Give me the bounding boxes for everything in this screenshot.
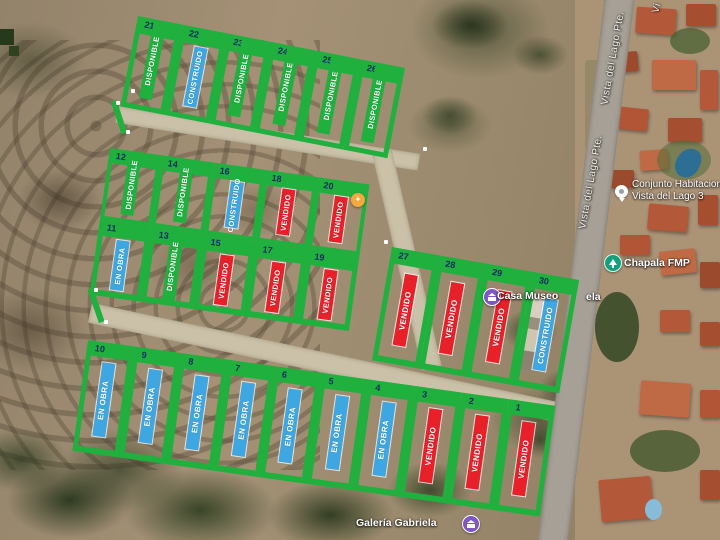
lot-status-label: CONSTRUIDO [226,177,242,232]
lot-number: 30 [538,275,550,287]
lot-status-label: EN OBRA [330,412,344,453]
lot-status-bar: EN OBRA [139,369,162,444]
vertex-dot[interactable] [94,288,98,292]
poi-label-conjunto-line2: Vista del Lago 3 [632,191,704,203]
lot-number: 14 [167,158,178,169]
lot-status-bar: DISPONIBLE [361,64,389,143]
lot-status-label: EN OBRA [113,246,127,284]
lot-status-bar: EN OBRA [185,375,208,450]
lot-number: 17 [262,244,273,255]
lot-status-bar: EN OBRA [92,362,115,437]
lot-status-bar: DISPONIBLE [317,56,345,135]
lot-status-label: EN OBRA [236,399,250,440]
lot-status-label: DISPONIBLE [321,70,339,121]
lot-status-bar: EN OBRA [372,402,395,477]
lot-status-bar: VENDIDO [466,415,489,490]
lot-number: 1 [515,402,521,413]
lot-status-bar: VENDIDO [318,269,338,320]
lot-status-bar: CONSTRUIDO [183,46,207,107]
lot-status-bar: VENDIDO [513,421,536,496]
lot-status-label: VENDIDO [423,426,437,466]
lot-number: 18 [271,173,282,184]
lot-status-label: VENDIDO [331,201,345,239]
poi-label-galeria-gabriela: Galería Gabriela [356,517,437,529]
lot-status-bar: EN OBRA [232,382,255,457]
lot-status-label: DISPONIBLE [165,241,181,292]
orange-poi-marker[interactable]: ✦ [351,193,365,207]
lot-number: 9 [141,350,147,361]
lot-status-label: VENDIDO [279,193,293,231]
lot-status-bar: DISPONIBLE [121,153,143,216]
vertex-dot[interactable] [104,320,108,324]
lot-20[interactable]: 20VENDIDO [308,177,370,256]
lot-status-bar: VENDIDO [214,254,234,305]
lot-number: 28 [445,259,457,271]
tree-cluster-north [410,0,580,160]
lot-status-bar: CONSTRUIDO [225,181,244,228]
lot-status-bar: EN OBRA [110,240,130,291]
poi-label-chapala-fmp: Chapala FMP [624,257,690,269]
lot-number: 2 [468,396,474,407]
lot-number: 22 [188,28,200,40]
lot-status-label: CONSTRUIDO [536,306,555,364]
lot-number: 4 [375,383,381,394]
lot-number: 19 [314,252,325,263]
lot-status-bar: DISPONIBLE [228,38,256,117]
lot-number: 29 [491,267,503,279]
lot-status-bar: DISPONIBLE [272,47,300,126]
vertex-dot[interactable] [423,147,427,151]
lot-status-bar: DISPONIBLE [139,21,167,100]
vertex-dot[interactable] [384,240,388,244]
lot-status-label: VENDIDO [217,261,231,299]
lot-status-label: EN OBRA [190,393,204,434]
lot-status-bar: VENDIDO [328,196,347,243]
museum-glyph [467,520,475,523]
lot-status-label: EN OBRA [96,379,110,420]
lot-number: 3 [421,389,427,400]
lot-status-bar: CONSTRUIDO [533,298,558,371]
vertex-dot[interactable] [131,89,135,93]
lot-status-label: DISPONIBLE [123,159,139,210]
lot-status-label: EN OBRA [143,386,157,427]
lot-number: 10 [94,343,105,354]
lot-status-label: DISPONIBLE [277,61,295,112]
swimming-pool [645,499,662,520]
lot-status-label: VENDIDO [397,290,413,330]
lot-status-label: EN OBRA [377,419,391,460]
lot-status-label: EN OBRA [283,406,297,447]
lot-status-label: DISPONIBLE [175,166,191,217]
lot-status-label: DISPONIBLE [232,53,250,104]
lot-status-bar: VENDIDO [419,408,442,483]
place-pin-icon[interactable] [615,185,628,198]
map-canvas[interactable]: 21DISPONIBLE22CONSTRUIDO23DISPONIBLE24DI… [0,0,720,540]
lot-status-bar: VENDIDO [392,274,417,347]
lot-number: 20 [323,180,334,191]
tree-blob [9,46,19,56]
lot-status-label: DISPONIBLE [143,35,161,86]
lot-number: 13 [158,230,169,241]
lot-status-label: DISPONIBLE [366,78,384,129]
poi-label-casa-museo: Casa Museo [497,290,558,302]
lot-status-bar: DISPONIBLE [162,231,184,300]
lot-number: 15 [210,237,221,248]
lot-status-bar: VENDIDO [439,282,464,355]
museum-icon[interactable] [462,515,480,533]
lot-status-bar: EN OBRA [326,395,349,470]
lot-number: 6 [281,369,287,380]
lot-19[interactable]: 19VENDIDO [297,248,359,331]
vertex-dot[interactable] [116,101,120,105]
lot-status-bar: VENDIDO [266,262,286,313]
lot-number: 16 [219,166,230,177]
lot-status-label: VENDIDO [321,276,335,314]
lot-status-label: CONSTRUIDO [186,50,205,105]
lot-status-label: VENDIDO [470,432,484,472]
lot-number: 7 [234,363,240,374]
lot-number: 8 [188,356,194,367]
lot-status-label: VENDIDO [269,268,283,306]
poi-label-casa-museo-suffix: ela [586,291,601,303]
lot-number: 12 [115,151,126,162]
lot-status-bar: EN OBRA [279,388,302,463]
tree-blob [0,29,14,45]
poi-label-conjunto-line1: Conjunto Habitacional [632,179,720,191]
lot-number: 5 [328,376,334,387]
museum-glyph [488,293,496,296]
lot-number: 27 [398,250,410,262]
lot-status-bar: VENDIDO [277,188,296,235]
vertex-dot[interactable] [126,130,130,134]
lot-status-label: VENDIDO [444,298,460,338]
lot-status-label: VENDIDO [517,439,531,479]
lot-number: 11 [106,222,117,233]
park-icon[interactable] [604,254,622,272]
lot-status-label: VENDIDO [491,307,507,347]
